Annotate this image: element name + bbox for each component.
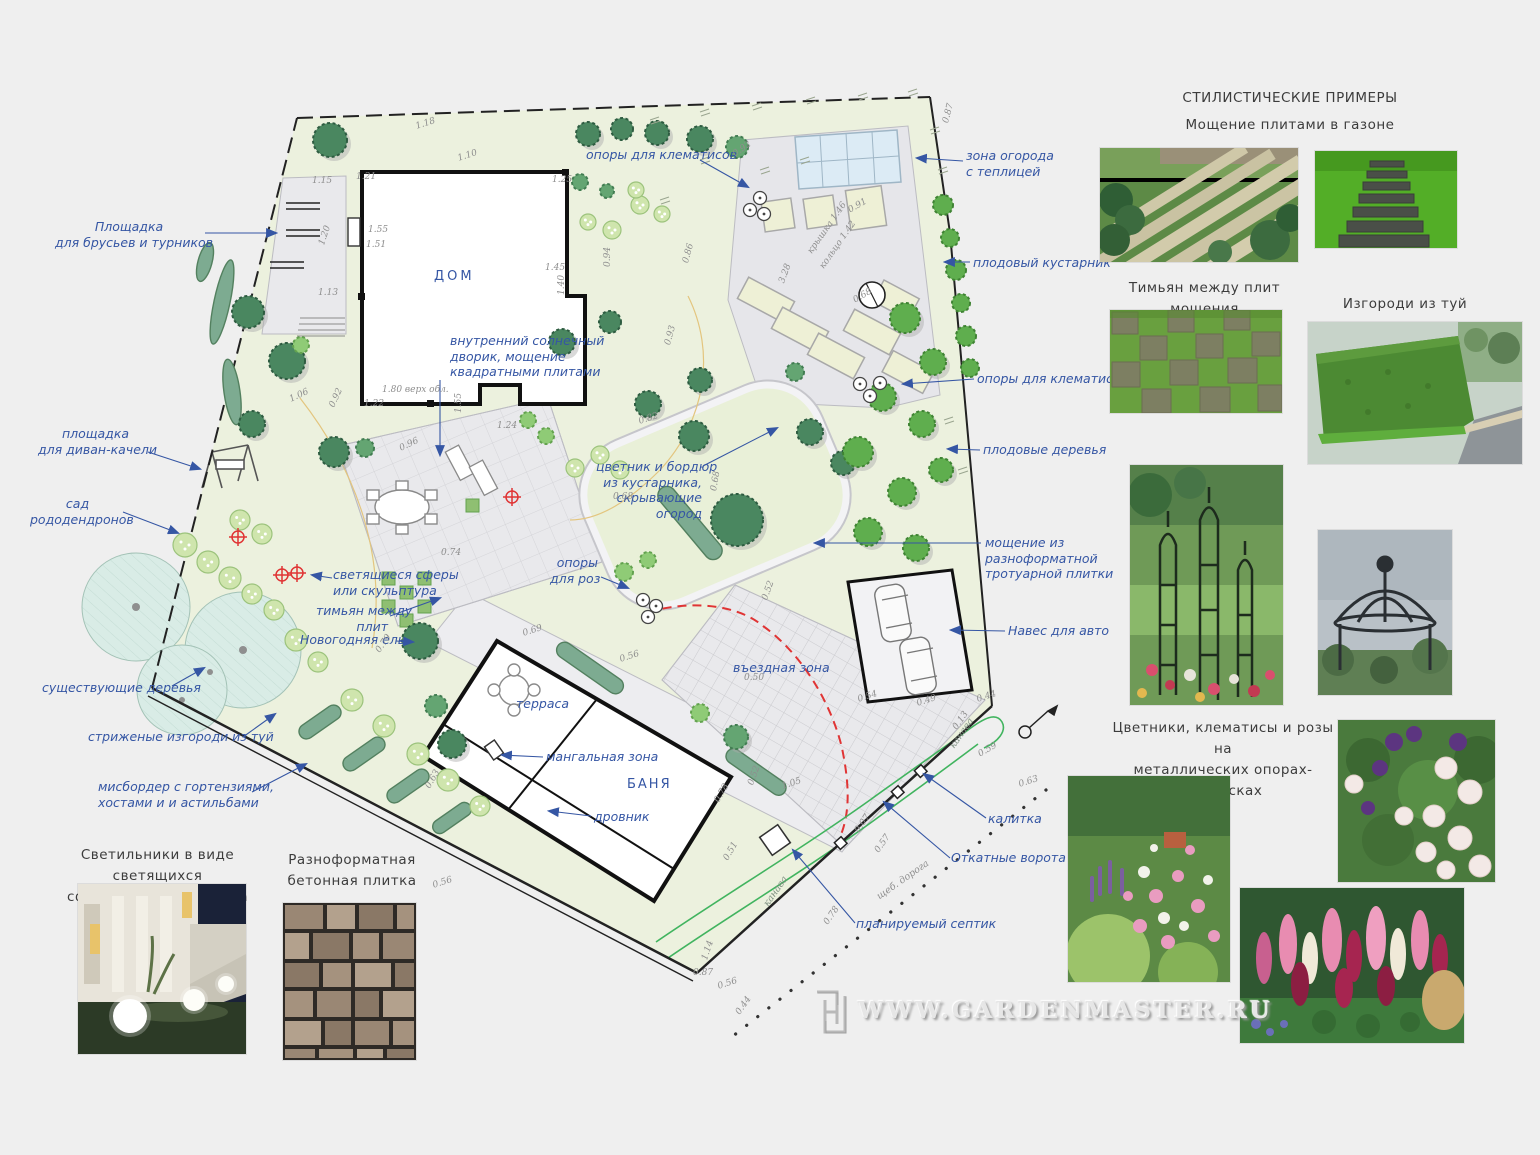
callout-woodshed: дровник — [594, 809, 649, 825]
callout-existing-trees: существующие деревья — [42, 680, 201, 696]
elevation-mark: 1.51 — [366, 240, 386, 250]
elevation-mark: 1.22 — [364, 399, 384, 409]
caption-tiles: Разноформатнаябетонная плитка — [286, 850, 418, 892]
elevation-mark: 1.55 — [454, 393, 464, 413]
callout-clematis-supports-top: опоры для клематисов — [586, 147, 737, 163]
elevation-mark: 0.94 — [603, 247, 613, 267]
elevation-mark: 1.40 — [557, 275, 567, 295]
elevation-mark: 1.55 — [368, 225, 388, 235]
elevation-mark: 1.21 — [356, 172, 376, 182]
caption-thuja: Изгороди из туй — [1330, 294, 1480, 315]
callout-rose-supports: опорыдля роз — [550, 555, 598, 586]
photo-glowing-sphere-lamps — [78, 884, 246, 1054]
elevation-mark: 1.13 — [318, 288, 338, 298]
elevation-mark: 0.74 — [441, 548, 461, 558]
callout-thyme-plates: тимьян междуплит — [316, 603, 388, 634]
photo-slabs-in-lawn — [1315, 151, 1457, 248]
photo-cosmos-flowerbed — [1068, 776, 1230, 982]
label-terrace: терраса — [516, 696, 569, 712]
callout-mixborder: мисбордер с гортензиями,хостами и и асти… — [98, 779, 256, 810]
elevation-mark: 0.68 — [613, 492, 633, 502]
callout-mixed-paving: мощение изразноформатнойтротуарной плитк… — [985, 535, 1113, 582]
callout-fruit-bush: плодовый кустарник — [973, 255, 1111, 271]
carport — [848, 570, 972, 702]
photo-thuja-hedge — [1308, 322, 1522, 464]
elevation-mark: 1.15 — [312, 176, 332, 186]
house-porch — [348, 218, 360, 246]
elevation-mark: 1.24 — [497, 421, 517, 431]
watermark-url: WWW.GARDENMASTER.RU — [858, 997, 1273, 1024]
elevation-mark: 0.87 — [693, 968, 713, 978]
callout-greenhouse-zone: зона огородас теплицей — [966, 148, 1054, 179]
callout-bars-area: Площадкадля брусьев и турников — [55, 219, 203, 250]
label-banya: БАНЯ — [627, 777, 672, 792]
callout-flowerbed-border: цветник и бордюриз кустарника, скрывающи… — [596, 459, 702, 522]
callout-fruit-trees: плодовые деревья — [983, 442, 1106, 458]
photo-astilbe-bed — [1240, 888, 1464, 1043]
label-house: ДОМ — [434, 269, 475, 284]
photo-dome-obelisk — [1318, 530, 1452, 695]
photo-clematis-roses — [1338, 720, 1495, 882]
callout-rhododendron-garden: садрододендронов — [30, 496, 125, 527]
callout-courtyard: внутренний солнечныйдворик, мощениеквадр… — [450, 333, 604, 380]
elevation-mark: 1.80 верх обл. — [382, 385, 449, 395]
gardenmaster-logo-icon — [813, 990, 849, 1038]
elevation-mark: 1.25 — [552, 175, 572, 185]
photo-concrete-pavers — [283, 903, 416, 1060]
callout-sliding-gate: Откатные ворота — [951, 850, 1066, 866]
caption-paving-lawn: Мощение плитами в газоне — [1180, 115, 1400, 136]
callout-glowing-spheres: светящиеся сферыили скульптура — [333, 567, 459, 598]
landscape-plan-sheet: Площадкадля брусьев и турников площадкад… — [0, 0, 1540, 1155]
elevation-mark: 0.50 — [744, 673, 764, 683]
photo-thyme-checkerboard — [1110, 310, 1282, 413]
callout-septic: планируемый септик — [856, 916, 996, 932]
callout-clematis-supports-right: опоры для клематисов — [977, 371, 1128, 387]
photo-lawn-steps — [1100, 148, 1298, 262]
greenhouse — [795, 130, 901, 189]
examples-title: СТИЛИСТИЧЕСКИЕ ПРИМЕРЫ — [1180, 88, 1400, 109]
elevation-mark: 1.45 — [545, 263, 565, 273]
callout-carport: Навес для авто — [1008, 623, 1109, 639]
photo-rose-obelisks — [1130, 465, 1283, 705]
callout-gate: калитка — [988, 811, 1042, 827]
callout-grill-zone: мангальная зона — [546, 749, 658, 765]
callout-swing-area: площадкадля диван-качели — [38, 426, 153, 457]
callout-thuja-hedges: стриженые изгороди из туй — [88, 729, 274, 745]
